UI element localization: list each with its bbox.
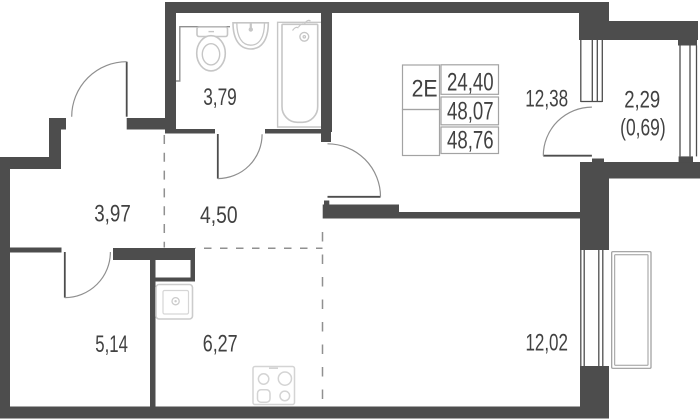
svg-text:5,14: 5,14 [95, 331, 128, 358]
svg-text:4,50: 4,50 [200, 202, 238, 229]
svg-text:2,29: 2,29 [624, 86, 660, 113]
svg-text:2Е: 2Е [412, 75, 438, 102]
svg-text:48,07: 48,07 [447, 98, 494, 126]
svg-text:12,38: 12,38 [525, 85, 568, 112]
svg-text:48,76: 48,76 [447, 127, 494, 155]
svg-text:12,02: 12,02 [525, 330, 568, 357]
svg-text:3,79: 3,79 [203, 84, 237, 111]
svg-text:24,40: 24,40 [447, 69, 494, 97]
svg-text:(0,69): (0,69) [620, 115, 666, 142]
svg-text:6,27: 6,27 [203, 331, 238, 358]
svg-text:3,97: 3,97 [94, 201, 131, 228]
